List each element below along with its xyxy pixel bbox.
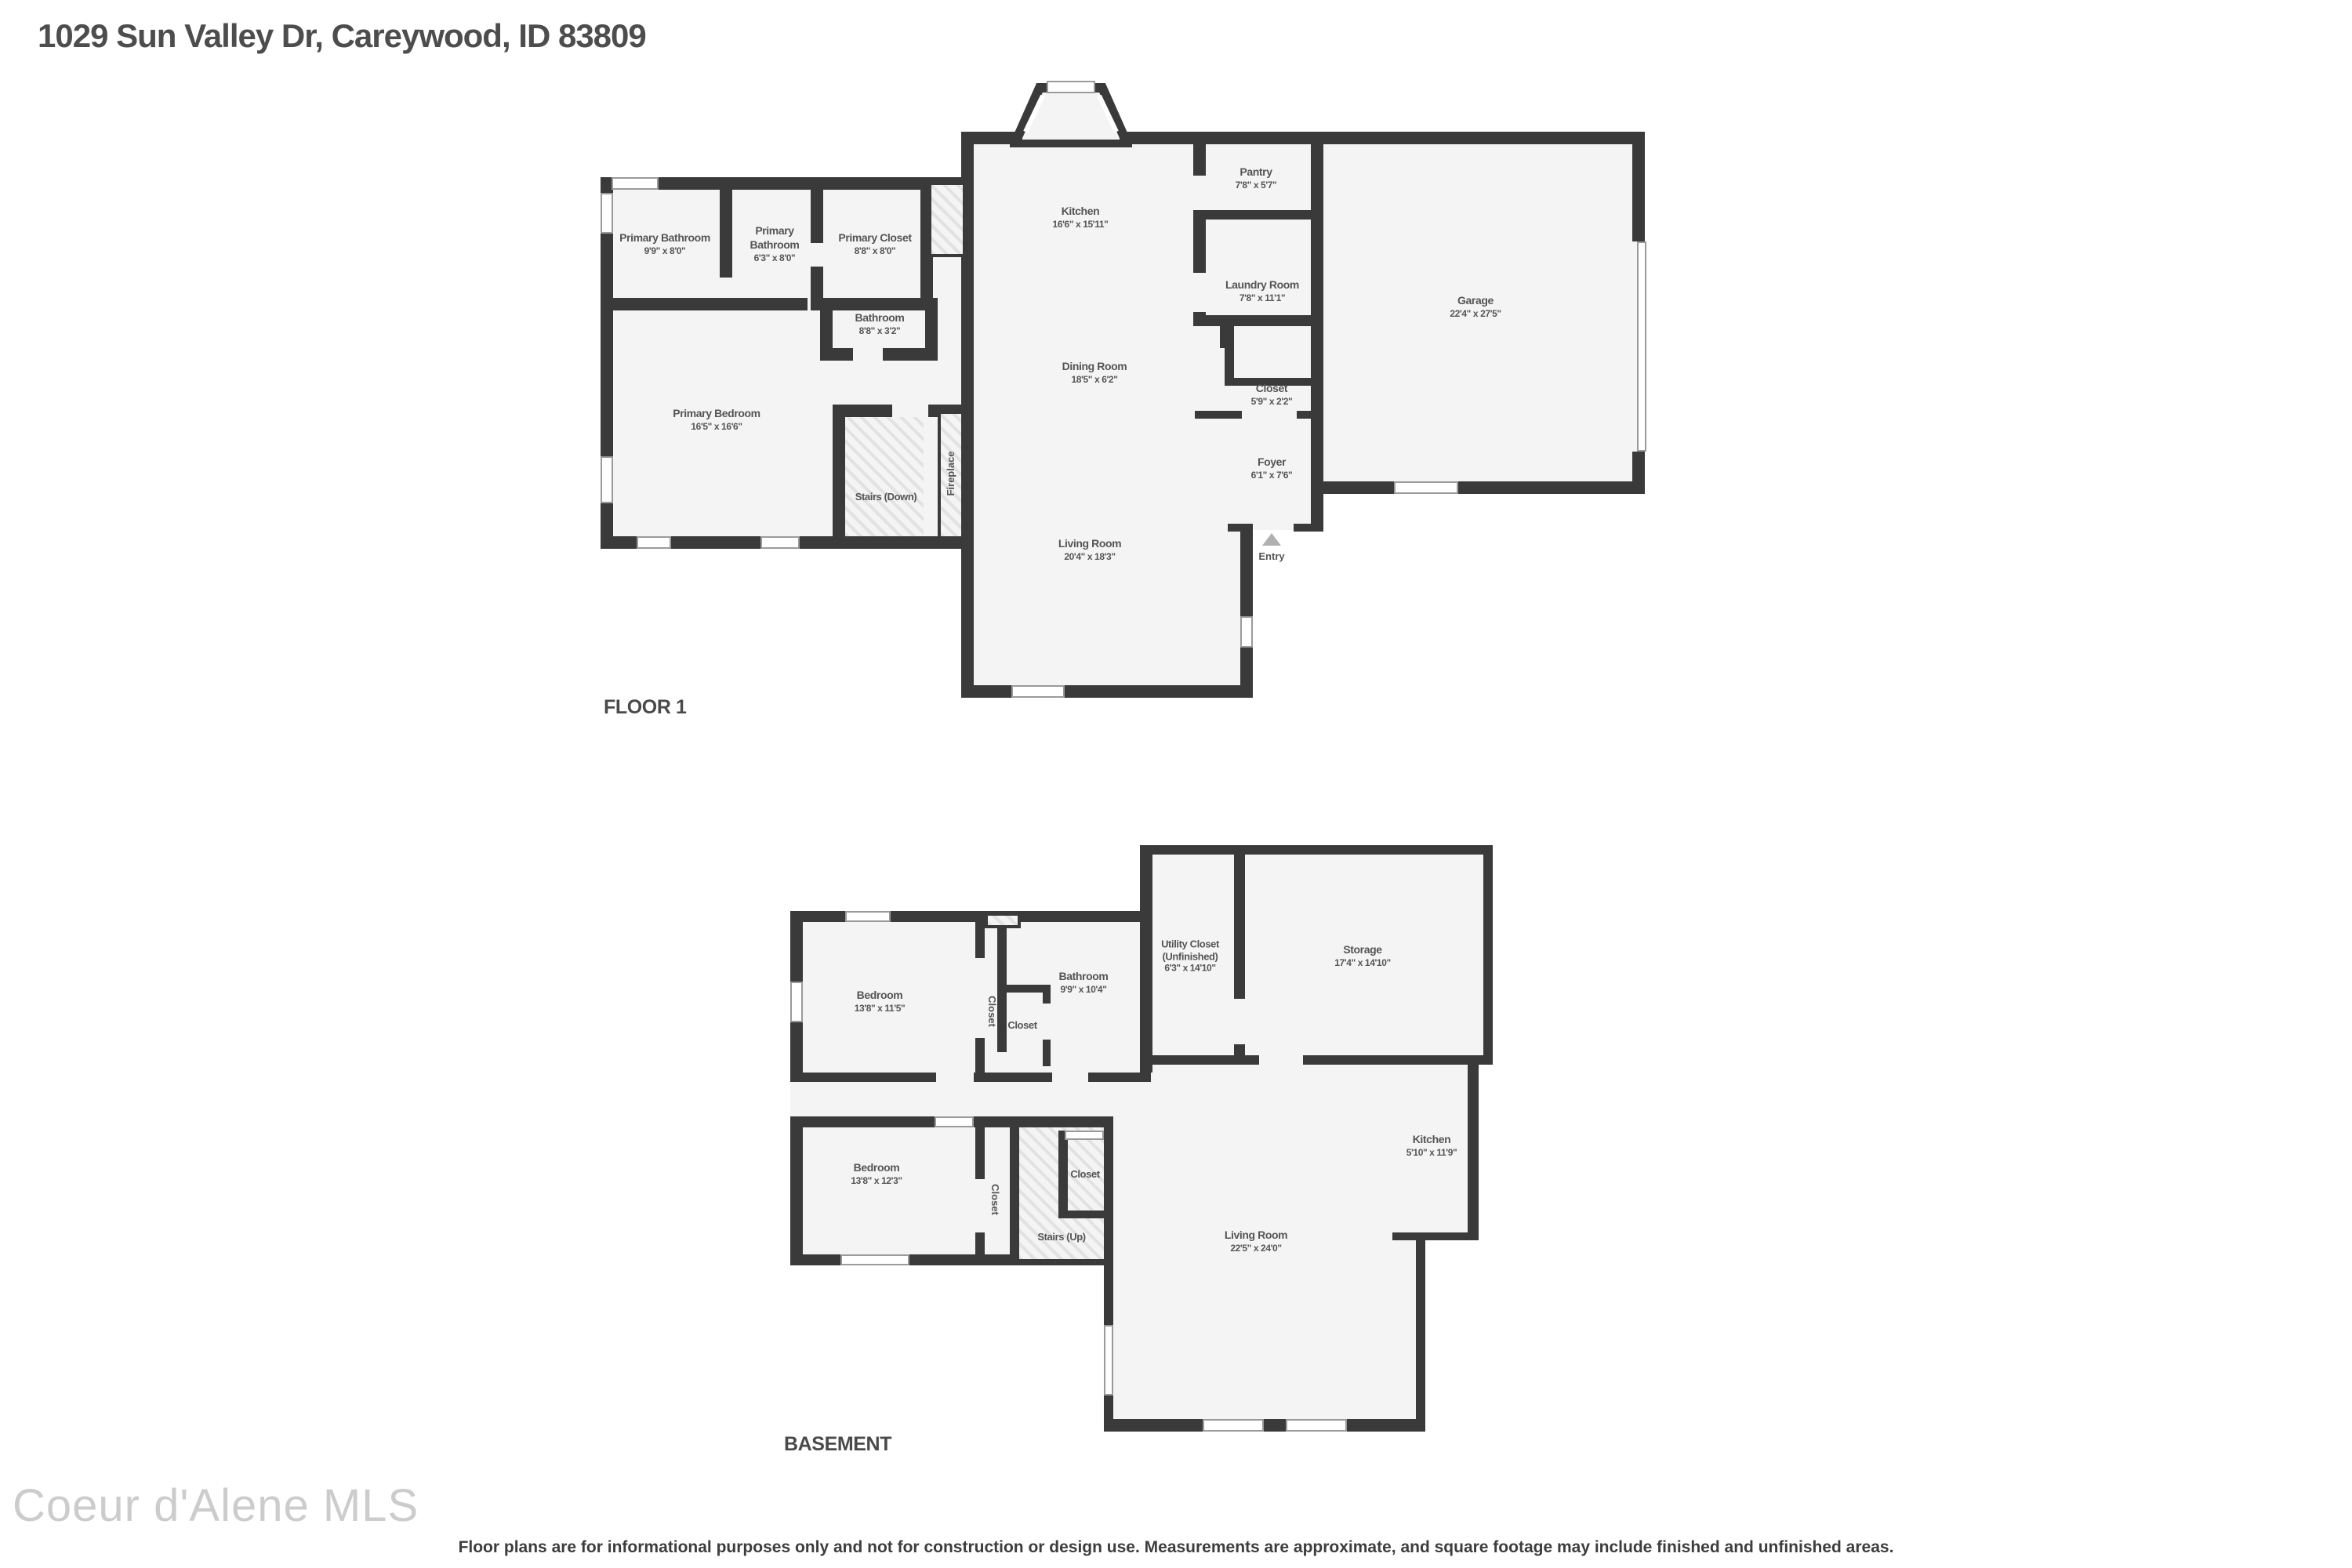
- room-label-fireplace: Fireplace: [946, 451, 957, 495]
- window: [1286, 1419, 1347, 1432]
- room-name: Bedroom: [855, 991, 906, 1005]
- room-dims: 20'4" x 18'3": [1058, 553, 1121, 564]
- garage-door-opening: [1637, 241, 1646, 452]
- wall: [1225, 321, 1234, 384]
- room-label-storage: Storage 17'4" x 14'10": [1334, 946, 1391, 971]
- room-name: Bathroom: [1059, 972, 1109, 986]
- room-label-utility-closet: Utility Closet (Unfinished) 6'3" x 14'10…: [1161, 939, 1219, 977]
- room-label-bathroom-basement: Bathroom 9'9" x 10'4": [1059, 972, 1109, 998]
- wall: [1104, 1419, 1203, 1432]
- bay-window: [1010, 75, 1132, 147]
- wall: [1058, 1131, 1065, 1140]
- wall: [1043, 985, 1051, 1004]
- wall: [1193, 315, 1319, 326]
- wall: [1264, 1419, 1286, 1432]
- mls-watermark: Coeur d'Alene MLS: [13, 1482, 419, 1534]
- wall: [974, 1073, 1052, 1082]
- floor-area: [790, 1082, 1113, 1116]
- wall: [975, 1116, 985, 1179]
- room-dims: 6'3" x 8'0": [743, 254, 806, 266]
- room-label-stairs-down: Stairs (Down): [855, 492, 917, 505]
- window: [601, 193, 613, 234]
- room-label-living-basement: Living Room 22'5" x 24'0": [1225, 1231, 1287, 1257]
- window: [1203, 1419, 1264, 1432]
- wall: [1303, 1055, 1493, 1065]
- room-label-closet: Closet 5'9" x 2'2": [1251, 384, 1293, 410]
- wall: [1458, 481, 1645, 494]
- room-name: Living Room: [1058, 539, 1121, 554]
- room-name: Bathroom: [855, 314, 905, 328]
- room-label-laundry: Laundry Room 7'8" x 11'1": [1225, 281, 1299, 307]
- wall: [1228, 524, 1253, 532]
- room-name: Dining Room: [1062, 362, 1127, 376]
- wall: [1010, 1116, 1019, 1264]
- room-name: Pantry: [1236, 168, 1277, 182]
- wall: [1104, 1254, 1113, 1325]
- window: [845, 911, 891, 922]
- room-name: Primary Bedroom: [673, 409, 760, 423]
- room-dims: 5'10" x 11'9": [1406, 1149, 1457, 1160]
- stairs-down-hatch: [845, 417, 924, 536]
- wall: [1058, 1131, 1068, 1218]
- room-label-kitchen-basement: Kitchen 5'10" x 11'9": [1406, 1135, 1457, 1161]
- wall: [790, 1116, 935, 1127]
- hatch-patch: [985, 913, 1021, 928]
- room-label-bathroom: Bathroom 8'8" x 3'2": [855, 314, 905, 339]
- room-name: Primary Closet: [838, 234, 911, 248]
- room-dims: 9'9" x 10'4": [1059, 985, 1109, 997]
- wall: [1468, 1065, 1479, 1240]
- wall: [1043, 1040, 1051, 1066]
- wall: [961, 132, 1022, 144]
- wall: [601, 298, 808, 310]
- wall: [790, 1254, 840, 1265]
- wall: [1240, 648, 1253, 698]
- room-name: Laundry Room: [1225, 281, 1299, 295]
- room-dims: 18'5" x 6'2": [1062, 376, 1127, 387]
- wall: [1088, 1073, 1151, 1082]
- room-dims: 13'8" x 12'3": [851, 1177, 902, 1189]
- wall: [1416, 1240, 1425, 1432]
- basement-title: BASEMENT: [784, 1433, 891, 1455]
- room-label-closet-hall: Closet: [985, 996, 996, 1027]
- window: [637, 536, 671, 549]
- room-name: Kitchen: [1406, 1135, 1457, 1149]
- wall: [925, 298, 938, 361]
- room-name: Foyer: [1251, 458, 1293, 472]
- room-label-pantry: Pantry 7'8" x 5'7": [1236, 168, 1277, 194]
- room-label-primary-bathroom-1: Primary Bathroom 9'9" x 8'0": [619, 234, 710, 260]
- room-label-primary-closet: Primary Closet 8'8" x 8'0": [838, 234, 911, 260]
- wall: [975, 1232, 985, 1265]
- window: [601, 456, 613, 503]
- room-dims: 6'3" x 14'10": [1161, 965, 1219, 977]
- window: [935, 1116, 974, 1127]
- wall: [1140, 845, 1152, 1073]
- wall: [1319, 481, 1394, 494]
- wall: [1632, 132, 1645, 241]
- window: [790, 982, 803, 1022]
- room-dims: 17'4" x 14'10": [1334, 959, 1391, 971]
- room-label-living: Living Room 20'4" x 18'3": [1058, 539, 1121, 565]
- room-label-kitchen: Kitchen 16'6" x 15'11": [1053, 207, 1109, 233]
- wall: [1140, 845, 1493, 855]
- room-name: Stairs (Up): [1037, 1232, 1085, 1245]
- window: [1011, 685, 1065, 698]
- wall: [1297, 411, 1319, 419]
- wall: [790, 1116, 803, 1264]
- room-dims: 8'8" x 3'2": [855, 327, 905, 339]
- window: [612, 177, 659, 190]
- room-dims: 16'6" x 15'11": [1053, 220, 1109, 232]
- room-name: Closet: [1070, 1170, 1099, 1182]
- room-dims: 22'4" x 27'5": [1450, 310, 1501, 321]
- wall: [833, 405, 845, 549]
- wall: [1240, 532, 1253, 616]
- room-dims: 9'9" x 8'0": [619, 247, 710, 259]
- wall: [1193, 144, 1206, 176]
- entry-arrow-icon: [1262, 533, 1281, 546]
- room-label-bedroom2: Bedroom 13'8" x 12'3": [851, 1163, 902, 1189]
- wall: [1140, 1055, 1259, 1065]
- wall: [1392, 1232, 1479, 1240]
- wall: [975, 911, 985, 958]
- room-dims: 16'5" x 16'6": [673, 423, 760, 434]
- room-name: Closet: [1007, 1021, 1036, 1033]
- room-label-foyer: Foyer 6'1" x 7'6": [1251, 458, 1293, 484]
- wall: [820, 348, 853, 361]
- room-label-closet-bath: Closet: [1007, 1021, 1036, 1033]
- disclaimer-text: Floor plans are for informational purpos…: [0, 1538, 2352, 1557]
- floor1-title: FLOOR 1: [604, 696, 687, 718]
- room-label-bedroom1: Bedroom 13'8" x 11'5": [855, 991, 906, 1017]
- room-name: Utility Closet: [1161, 939, 1219, 952]
- wall: [1311, 132, 1323, 532]
- room-name2: (Unfinished): [1161, 953, 1219, 965]
- wall: [790, 911, 1151, 922]
- wall: [1193, 210, 1206, 273]
- window: [1065, 1131, 1104, 1140]
- wall: [1234, 855, 1245, 999]
- chimney-hatch: [928, 182, 966, 257]
- room-name: Primary Bathroom: [619, 234, 710, 248]
- room-name: Kitchen: [1053, 207, 1109, 221]
- room-label-entry: Entry: [1258, 552, 1284, 563]
- wall: [974, 1116, 1113, 1127]
- room-dims: 8'8" x 8'0": [838, 247, 911, 259]
- wall: [1195, 411, 1242, 419]
- wall: [1120, 132, 1645, 144]
- page-title: 1029 Sun Valley Dr, Careywood, ID 83809: [38, 19, 646, 56]
- room-dims: 13'8" x 11'5": [855, 1004, 906, 1016]
- room-name: Garage: [1450, 296, 1501, 310]
- room-dims: 7'8" x 5'7": [1236, 181, 1277, 193]
- room-label-closet-hall2: Closet: [989, 1184, 1000, 1215]
- floor-area: [1113, 1232, 1416, 1432]
- wall: [961, 685, 1013, 698]
- wall: [811, 177, 823, 243]
- window: [1394, 481, 1458, 494]
- wall: [1065, 685, 1253, 698]
- room-label-stairs-up: Stairs (Up): [1037, 1232, 1085, 1245]
- wall: [1483, 845, 1493, 1065]
- wall: [1347, 1419, 1425, 1432]
- wall: [997, 911, 1007, 1052]
- room-label-closet-stairs: Closet: [1070, 1170, 1099, 1182]
- room-label-garage: Garage 22'4" x 27'5": [1450, 296, 1501, 322]
- wall: [720, 177, 732, 278]
- wall: [790, 1073, 936, 1082]
- room-name: Primary Bathroom: [743, 227, 806, 254]
- room-dims: 7'8" x 11'1": [1225, 294, 1299, 306]
- wall: [1204, 210, 1319, 220]
- window: [840, 1254, 909, 1265]
- window: [760, 536, 800, 549]
- room-label-primary-bathroom-2: Primary Bathroom 6'3" x 8'0": [743, 227, 806, 266]
- wall: [975, 1038, 985, 1073]
- room-label-primary-bedroom: Primary Bedroom 16'5" x 16'6": [673, 409, 760, 435]
- room-name: Storage: [1334, 946, 1391, 960]
- floorplan-canvas: 1029 Sun Valley Dr, Careywood, ID 83809: [0, 0, 2352, 1568]
- room-name: Stairs (Down): [855, 492, 917, 505]
- room-dims: 6'1" x 7'6": [1251, 471, 1293, 483]
- room-label-dining: Dining Room 18'5" x 6'2": [1062, 362, 1127, 388]
- window: [1104, 1325, 1113, 1396]
- room-name: Bedroom: [851, 1163, 902, 1178]
- wall: [1104, 1116, 1113, 1264]
- room-dims: 5'9" x 2'2": [1251, 397, 1293, 409]
- wall: [1294, 524, 1319, 532]
- window: [1240, 616, 1253, 648]
- room-name: Closet: [1251, 384, 1293, 398]
- room-dims: 22'5" x 24'0": [1225, 1244, 1287, 1256]
- room-name: Living Room: [1225, 1231, 1287, 1245]
